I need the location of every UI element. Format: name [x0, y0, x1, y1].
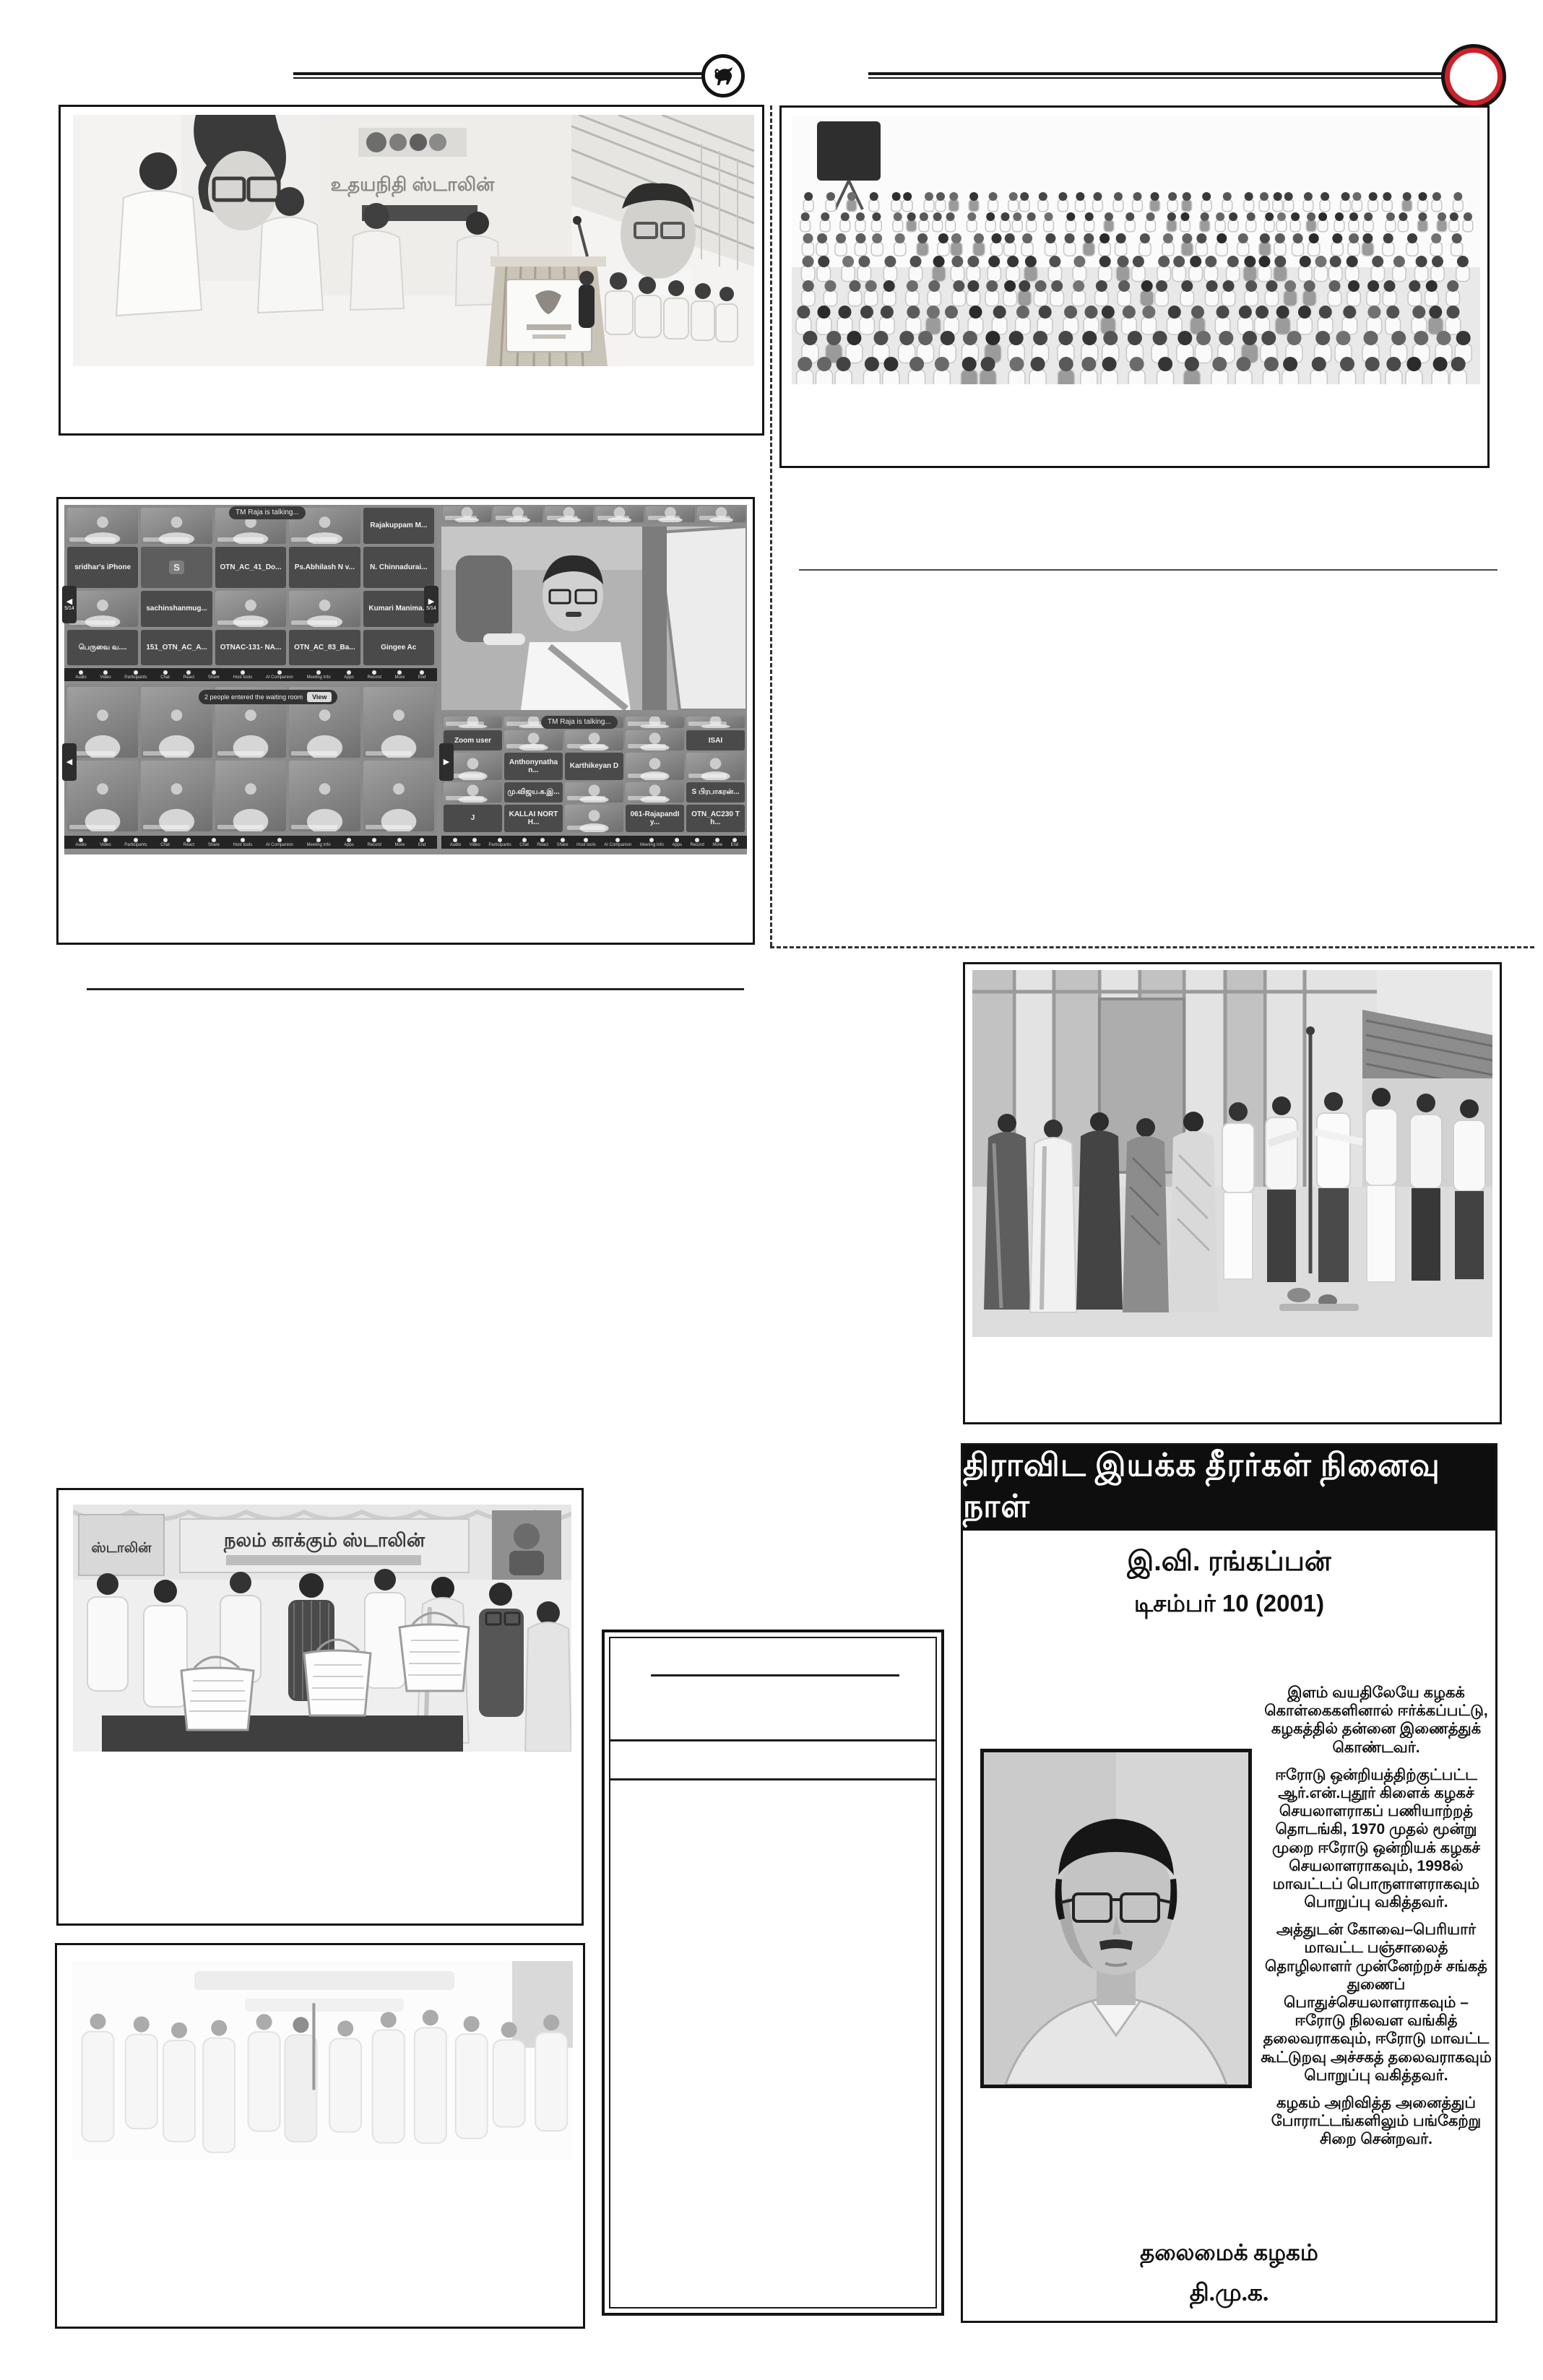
zoom-toolbar-share-icon: Share — [208, 838, 220, 847]
zoom-participant-tile — [595, 506, 644, 522]
participant-name: Zoom user — [453, 737, 493, 745]
left-article-rule — [87, 988, 744, 990]
photo-crowd — [792, 116, 1480, 384]
zoom-toolbar-share-icon: Share — [557, 838, 569, 847]
zoom-toolbar-meeting-info-icon: Meeting Info — [307, 670, 331, 680]
zoom-toolbar-host-tools-icon: Host tools — [233, 670, 253, 680]
memorial-footer-party: தி.மு.க. — [963, 2280, 1495, 2310]
masthead-right-rule — [868, 72, 1445, 79]
article-dashed-bottom — [770, 946, 1534, 948]
participant-name: ISAI — [707, 737, 724, 745]
zoom-participant-tile — [215, 591, 286, 627]
zoom-participant-tile — [67, 687, 138, 758]
zoom-toolbar-end-icon: End — [418, 838, 426, 847]
zoom-participant-tile: Karthikeyan D — [565, 753, 623, 780]
zoom-participant-tile: Gingee Ac — [363, 630, 434, 666]
participant-name: OTN_AC_83_Ba... — [293, 644, 356, 652]
newspaper-page: உதயநிதி ஸ்டாலின் — [0, 0, 1543, 2380]
participant-name: Kumari Manima... — [367, 605, 430, 613]
bull-emblem-icon — [701, 54, 745, 98]
empty-ad-box — [602, 1630, 944, 2316]
zoom-participant-tile — [686, 753, 745, 780]
zoom-participant-tile: OTN_AC_83_Ba... — [289, 630, 360, 666]
stage-backdrop-text: உதயநிதி ஸ்டாலின் — [331, 173, 496, 198]
bull-glyph — [711, 65, 735, 87]
zoom-participant-tile — [289, 591, 360, 627]
zoom-participant-tile: J — [444, 805, 502, 832]
zoom-toolbar-more-icon: More — [395, 670, 405, 680]
memorial-title: திராவிட இயக்க தீரர்கள் நினைவு நாள் — [963, 1447, 1495, 1529]
memorial-name: இ.வி. ரங்கப்பன் — [963, 1546, 1495, 1581]
zoom-toolbar-participants-icon: Participants — [124, 838, 147, 847]
zoom-participant-tile — [289, 761, 360, 831]
participant-name: N. Chinnadurai... — [368, 563, 428, 571]
zoom-participant-tile — [626, 782, 684, 802]
photo-faded — [72, 1961, 573, 2160]
zoom-participant-tile — [504, 730, 563, 750]
participant-name: sridhar's iPhone — [73, 563, 132, 571]
photo-montage-frame: Rajakuppam M...sridhar's iPhoneSOTN_AC_4… — [56, 497, 755, 945]
participant-name: S — [169, 561, 184, 574]
participant-name: OTN_AC_41_Do... — [218, 563, 282, 571]
zoom-toolbar-react-icon: React — [183, 838, 195, 847]
participant-name: Rajakuppam M... — [368, 522, 428, 529]
participant-name: 061-RajapandIy... — [626, 810, 684, 826]
zoom-participant-tile: பெருவை வ.... — [67, 630, 138, 666]
zoom-toolbar-more-icon: More — [395, 838, 405, 847]
zoom-participant-tile: OTN_AC230 Th... — [686, 805, 745, 832]
zoom-participant-tile — [697, 506, 745, 522]
zoom-participant-tile — [626, 730, 684, 750]
participant-name: OTNAC-131- NA... — [219, 644, 282, 652]
masthead-left-rule — [293, 72, 704, 79]
zoom-toolbar-chat-icon: Chat — [160, 838, 170, 847]
zoom-participant-tile — [444, 717, 502, 728]
memorial-portrait — [980, 1749, 1252, 2088]
photo-stage-frame: உதயநிதி ஸ்டாலின் — [59, 105, 764, 436]
participant-name: OTN_AC230 Th... — [686, 810, 745, 826]
zoom-toolbar-ai-companion-icon: AI Companion — [266, 670, 293, 680]
zoom-participant-tile: 151_OTN_AC_A... — [141, 630, 212, 666]
participant-name: Anthonynathan... — [504, 758, 563, 774]
participant-name: Ps.Abhilash N v... — [293, 563, 356, 571]
zoom-toolbar-more-icon: More — [712, 838, 722, 847]
zoom-toolbar-audio-icon: Audio — [75, 838, 86, 847]
zoom-toolbar-chat-icon: Chat — [160, 670, 170, 680]
memorial-paragraph: இளம் வயதிலேயே கழகக் கொள்கைகளினால் ஈர்க்க… — [1261, 1684, 1492, 1757]
zoom-participant-tile: S பிரபாகரன்... — [686, 782, 745, 802]
photo-baskets: ஸ்டாலின் நலம் காக்கும் ஸ்டாலின் — [73, 1505, 571, 1752]
photo-faded-frame — [55, 1943, 585, 2329]
zoom-participant-tile — [67, 761, 138, 831]
women-group — [984, 1112, 1218, 1312]
baskets-poster-text: ஸ்டாலின் — [91, 1541, 152, 1556]
zoom-participant-tile — [565, 782, 623, 802]
memorial-date: டிசம்பர் 10 (2001) — [963, 1590, 1495, 1621]
zoom-strip-top-right — [441, 505, 747, 524]
zoom-participant-tile: sridhar's iPhone — [67, 547, 138, 589]
zoom-participant-tile: Anthonynathan... — [504, 753, 563, 780]
gallery-nav-left-2: ◀ — [62, 743, 77, 781]
participant-name: KALLAI NORTH... — [504, 810, 563, 826]
zoom-participant-tile: N. Chinnadurai... — [363, 547, 434, 589]
gallery-nav-right: ▶5/14 — [424, 586, 438, 623]
zoom-toolbar-video-icon: Video — [470, 838, 480, 847]
participant-name: மு.விஜய.க.இ... — [506, 788, 561, 796]
zoom-participant-tile — [443, 506, 491, 522]
zoom-toolbar-apps-icon: Apps — [344, 670, 354, 680]
participant-name: 151_OTN_AC_A... — [144, 644, 208, 652]
ad-band-rule-1 — [610, 1739, 935, 1741]
memorial-paragraph: ஈரோடு ஒன்றியத்திற்குட்பட்ட ஆர்.என்.புதூர… — [1261, 1766, 1492, 1912]
zoom-toolbar-audio-icon: Audio — [75, 670, 86, 680]
zoom-participant-tile — [363, 687, 434, 758]
zoom-participant-tile: 061-RajapandIy... — [626, 805, 684, 832]
photo-outdoor — [972, 970, 1492, 1337]
memorial-footer-org: தலைமைக் கழகம் — [963, 2240, 1495, 2269]
zoom-participant-tile: S — [141, 547, 212, 589]
zoom-participant-tile: Rajakuppam M... — [363, 508, 434, 544]
zoom-toolbar-host-tools-icon: Host tools — [233, 838, 253, 847]
waiting-room-note: 2 people entered the waiting room View — [199, 690, 337, 704]
zoom-participant-tile: KALLAI NORTH... — [504, 805, 563, 832]
zoom-participant-tile — [626, 753, 684, 780]
photo-stage: உதயநிதி ஸ்டாலின் — [73, 115, 754, 366]
zoom-toolbar-participants-icon: Participants — [124, 670, 147, 680]
waiting-room-text: 2 people entered the waiting room — [204, 690, 303, 704]
column-dashed-separator — [770, 105, 772, 946]
zoom-toolbar-apps-icon: Apps — [672, 838, 682, 847]
zoom-participant-tile — [444, 782, 502, 802]
zoom-participant-tile — [67, 591, 138, 627]
zoom-toolbar-react-icon: React — [183, 670, 195, 680]
zoom-toolbar-meeting-info-icon: Meeting Info — [307, 838, 331, 847]
participant-name: Gingee Ac — [379, 644, 418, 652]
participant-name: பெருவை வ.... — [77, 644, 129, 652]
zoom-participant-tile — [565, 805, 623, 832]
zoom-toolbar-record-icon: Record — [368, 838, 381, 847]
participant-name: Karthikeyan D — [569, 762, 620, 770]
zoom-toolbar-host-tools-icon: Host tools — [576, 838, 596, 847]
talking-toast-2: TM Raja is talking... — [541, 716, 618, 729]
zoom-participant-tile: ISAI — [686, 730, 745, 750]
zoom-toolbar-end-icon: End — [731, 838, 739, 847]
zoom-window-top-left: Rajakuppam M...sridhar's iPhoneSOTN_AC_4… — [64, 505, 437, 668]
zoom-participant-tile: மு.விஜய.க.இ... — [504, 782, 563, 802]
gallery-nav-left: ◀5/14 — [62, 586, 77, 623]
zoom-toolbar-participants-icon: Participants — [488, 838, 511, 847]
right-article-rule — [799, 569, 1497, 571]
zoom-toolbar-1: AudioVideoParticipantsChatReactShareHost… — [64, 668, 437, 681]
zoom-participant-tile — [141, 761, 212, 831]
red-ring-emblem-icon — [1445, 48, 1503, 105]
participant-name: S பிரபாகரன்... — [691, 788, 741, 796]
waiting-room-view-button: View — [307, 692, 332, 702]
zoom-participant-tile — [363, 761, 434, 831]
ad-band-rule-2 — [610, 1778, 935, 1780]
zoom-toolbar-ai-companion-icon: AI Companion — [604, 838, 631, 847]
memorial-paragraph: அத்துடன் கோவை–பெரியார் மாவட்ட பஞ்சாலைத் … — [1261, 1921, 1492, 2085]
participant-name: J — [470, 814, 477, 822]
zoom-toolbar-2: AudioVideoParticipantsChatReactShareHost… — [64, 836, 437, 849]
zoom-participant-tile — [141, 508, 212, 544]
talking-toast-1: TM Raja is talking... — [229, 506, 306, 519]
empty-ad-box-inner — [609, 1637, 937, 2308]
zoom-participant-tile — [686, 717, 745, 728]
zoom-participant-tile — [565, 730, 623, 750]
participant-name: sachinshanmug... — [144, 605, 208, 613]
photo-montage: Rajakuppam M...sridhar's iPhoneSOTN_AC_4… — [64, 505, 747, 854]
zoom-toolbar-ai-companion-icon: AI Companion — [266, 838, 293, 847]
zoom-toolbar-3: AudioVideoParticipantsChatReactShareHost… — [441, 836, 747, 849]
zoom-participant-tile: OTN_AC_41_Do... — [215, 547, 286, 589]
zoom-window-bottom-right: Zoom userISAIAnthonynathan...Karthikeyan… — [441, 714, 747, 834]
zoom-toolbar-meeting-info-icon: Meeting Info — [640, 838, 664, 847]
zoom-toolbar-apps-icon: Apps — [344, 838, 354, 847]
speaker-box — [817, 121, 881, 181]
zoom-toolbar-video-icon: Video — [100, 838, 111, 847]
ad-title-rule — [651, 1674, 899, 1676]
baskets-banner-text: நலம் காக்கும் ஸ்டாலின் — [223, 1529, 425, 1553]
zoom-participant-tile: OTNAC-131- NA... — [215, 630, 286, 666]
zoom-participant-tile — [545, 506, 593, 522]
photo-outdoor-frame — [963, 962, 1502, 1424]
zoom-toolbar-share-icon: Share — [208, 670, 220, 680]
memorial-paragraphs: இளம் வயதிலேயே கழகக் கொள்கைகளினால் ஈர்க்க… — [1261, 1684, 1492, 2158]
banner-face-right — [621, 183, 696, 295]
gallery-nav-left-3: ▶ — [439, 743, 454, 781]
zoom-toolbar-react-icon: React — [537, 838, 548, 847]
memorial-box: திராவிட இயக்க தீரர்கள் நினைவு நாள் இ.வி.… — [961, 1443, 1497, 2323]
zoom-toolbar-chat-icon: Chat — [519, 838, 529, 847]
zoom-participant-tile: sachinshanmug... — [141, 591, 212, 627]
zoom-participant-tile: Ps.Abhilash N v... — [289, 547, 360, 589]
photo-baskets-frame: ஸ்டாலின் நலம் காக்கும் ஸ்டாலின் — [56, 1488, 584, 1926]
zoom-participant-tile — [67, 508, 138, 544]
zoom-participant-tile — [493, 506, 542, 522]
zoom-toolbar-end-icon: End — [418, 670, 426, 680]
zoom-participant-tile — [215, 761, 286, 831]
memorial-paragraph: கழகம் அறிவித்த அனைத்துப் போராட்டங்களிலும… — [1261, 2094, 1492, 2149]
zoom-car-speaker-tile — [441, 527, 747, 710]
zoom-toolbar-record-icon: Record — [368, 670, 381, 680]
memorial-footer: தலைமைக் கழகம் தி.மு.க. — [963, 2240, 1495, 2310]
zoom-participant-tile — [626, 717, 684, 728]
photo-crowd-frame — [779, 105, 1490, 468]
zoom-toolbar-video-icon: Video — [100, 670, 111, 680]
zoom-toolbar-record-icon: Record — [691, 838, 704, 847]
zoom-participant-tile — [646, 506, 694, 522]
zoom-toolbar-audio-icon: Audio — [450, 838, 461, 847]
zoom-window-bottom-left — [64, 684, 437, 834]
memorial-header-bar: திராவிட இயக்க தீரர்கள் நினைவு நாள் — [963, 1445, 1495, 1531]
